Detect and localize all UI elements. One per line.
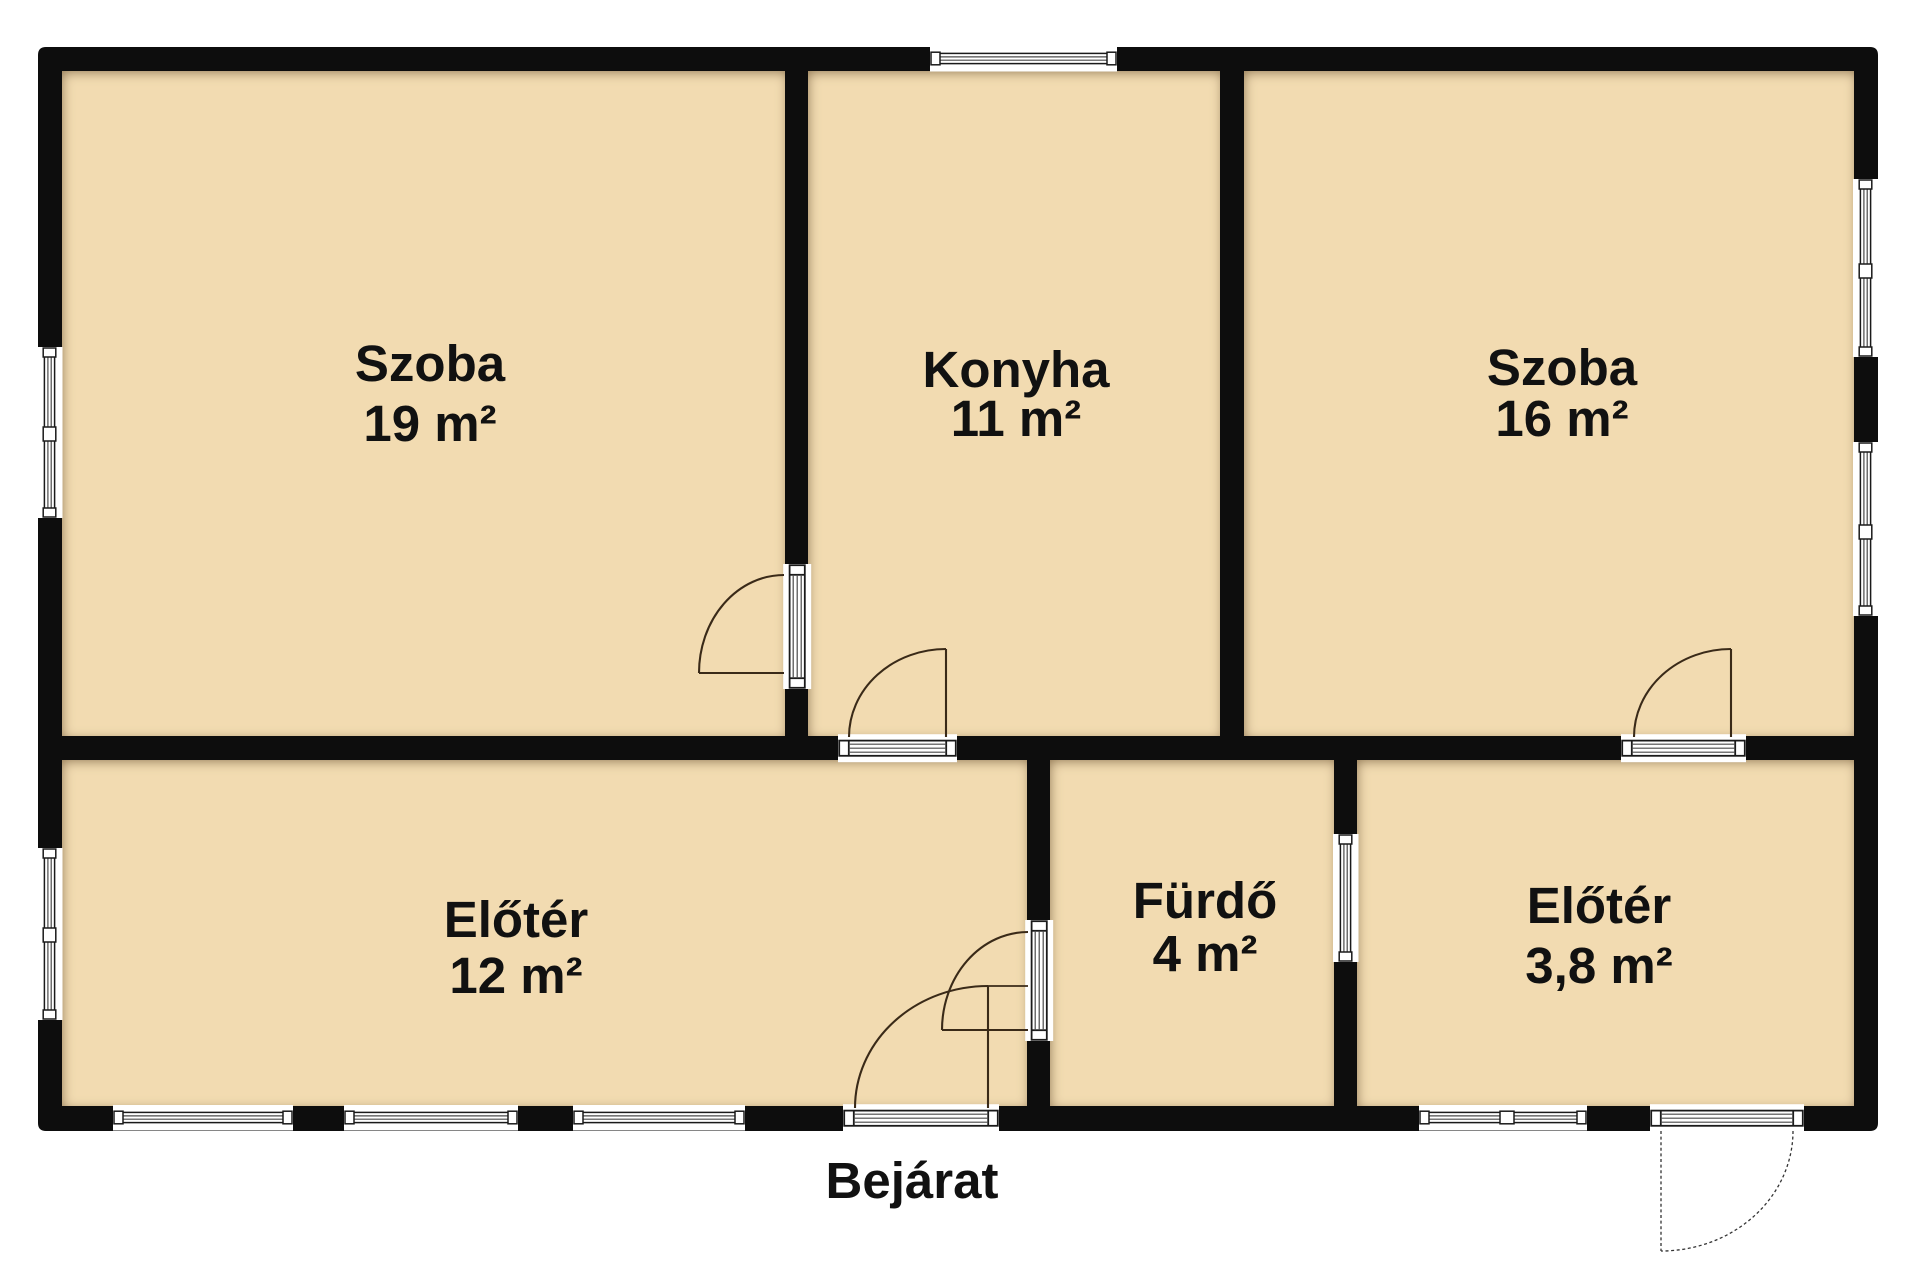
svg-text:Bejárat: Bejárat xyxy=(826,1152,999,1209)
svg-text:11 m²: 11 m² xyxy=(951,390,1081,447)
svg-text:Szoba: Szoba xyxy=(355,335,506,392)
svg-text:19 m²: 19 m² xyxy=(363,395,496,452)
svg-text:3,8 m²: 3,8 m² xyxy=(1525,937,1672,994)
svg-text:Fürdő: Fürdő xyxy=(1133,872,1277,929)
svg-text:Előtér: Előtér xyxy=(444,891,589,948)
svg-text:16 m²: 16 m² xyxy=(1495,390,1628,447)
svg-text:12 m²: 12 m² xyxy=(449,947,582,1004)
svg-text:Előtér: Előtér xyxy=(1527,877,1672,934)
svg-text:Szoba: Szoba xyxy=(1487,339,1638,396)
svg-text:4 m²: 4 m² xyxy=(1153,925,1258,982)
